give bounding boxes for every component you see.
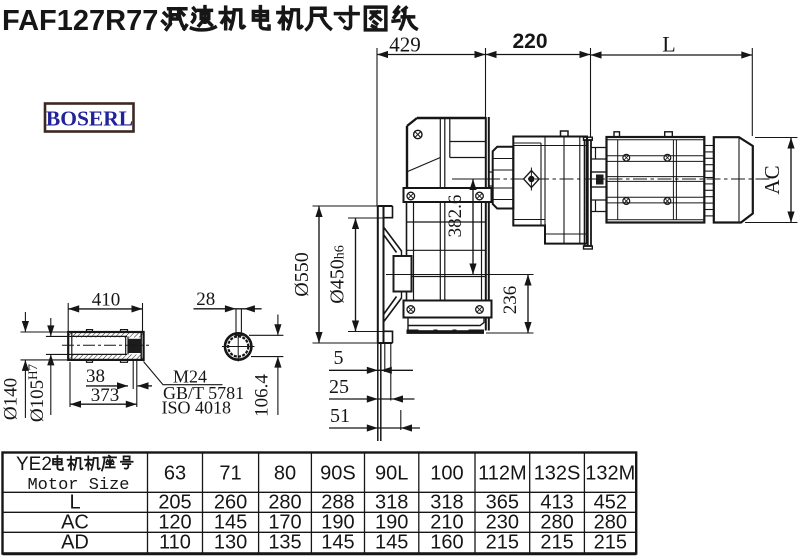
svg-text:YE2: YE2 [16, 454, 52, 475]
svg-text:5: 5 [334, 347, 344, 369]
svg-text:210: 210 [430, 512, 463, 534]
svg-text:110: 110 [159, 532, 191, 554]
svg-text:AD: AD [61, 532, 89, 554]
svg-text:130: 130 [214, 532, 247, 554]
svg-text:452: 452 [594, 492, 627, 514]
svg-text:382.6: 382.6 [445, 195, 466, 238]
svg-text:413: 413 [540, 492, 573, 514]
svg-text:280: 280 [540, 512, 573, 534]
svg-text:215: 215 [540, 532, 573, 554]
svg-text:230: 230 [486, 512, 519, 534]
svg-text:236: 236 [500, 286, 521, 315]
svg-text:L: L [69, 492, 80, 514]
svg-text:L: L [662, 32, 675, 57]
svg-text:215: 215 [594, 532, 627, 554]
svg-text:28: 28 [196, 289, 215, 310]
svg-text:318: 318 [430, 492, 463, 514]
svg-text:63: 63 [164, 463, 186, 485]
svg-text:71: 71 [219, 463, 241, 485]
svg-text:410: 410 [92, 290, 121, 311]
svg-text:280: 280 [268, 492, 301, 514]
svg-text:120: 120 [158, 512, 191, 534]
svg-text:160: 160 [430, 532, 463, 554]
svg-text:145: 145 [375, 532, 408, 554]
svg-text:318: 318 [375, 492, 408, 514]
svg-text:190: 190 [321, 512, 354, 534]
svg-text:BOSERL: BOSERL [46, 107, 133, 131]
svg-text:365: 365 [486, 492, 519, 514]
svg-text:260: 260 [214, 492, 247, 514]
svg-text:132S: 132S [534, 463, 581, 485]
svg-text:145: 145 [321, 532, 354, 554]
svg-text:170: 170 [268, 512, 301, 534]
svg-text:145: 145 [214, 512, 247, 534]
svg-text:280: 280 [594, 512, 627, 534]
svg-text:38: 38 [86, 366, 105, 387]
svg-text:205: 205 [158, 492, 191, 514]
svg-text:132M: 132M [585, 463, 635, 485]
svg-text:100: 100 [430, 463, 463, 485]
svg-text:106.4: 106.4 [252, 374, 273, 417]
svg-text:FAF127R77: FAF127R77 [2, 5, 158, 37]
svg-text:90L: 90L [375, 463, 408, 485]
svg-text:Ø140: Ø140 [1, 378, 22, 420]
svg-text:Ø550: Ø550 [291, 252, 313, 296]
svg-text:135: 135 [268, 532, 301, 554]
svg-text:ISO 4018: ISO 4018 [162, 398, 232, 418]
svg-text:AC: AC [61, 512, 89, 534]
svg-text:220: 220 [512, 30, 547, 53]
svg-text:373: 373 [91, 385, 120, 406]
svg-text:215: 215 [486, 532, 519, 554]
svg-text:429: 429 [389, 33, 421, 57]
svg-text:25: 25 [329, 376, 349, 398]
svg-text:112M: 112M [478, 463, 527, 485]
svg-text:90S: 90S [320, 463, 356, 485]
svg-text:190: 190 [375, 512, 408, 534]
svg-text:80: 80 [274, 463, 296, 485]
svg-text:51: 51 [330, 405, 350, 427]
svg-text:AC: AC [760, 165, 784, 194]
svg-text:288: 288 [321, 492, 354, 514]
